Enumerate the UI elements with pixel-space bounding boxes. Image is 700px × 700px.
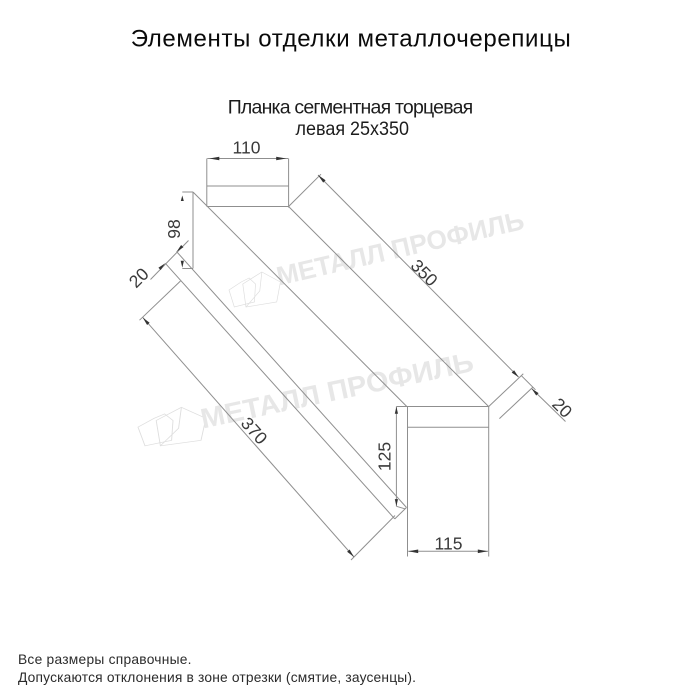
svg-text:Все размеры справочные.: Все размеры справочные.	[18, 652, 192, 667]
svg-text:20: 20	[125, 264, 153, 292]
svg-text:левая 25х350: левая 25х350	[296, 118, 410, 140]
svg-text:Элементы отделки металлочерепи: Элементы отделки металлочерепицы	[131, 25, 571, 52]
svg-text:Допускаются отклонения в зоне: Допускаются отклонения в зоне отрезки (с…	[18, 670, 416, 685]
svg-text:110: 110	[233, 138, 261, 158]
svg-text:МЕТАЛЛ ПРОФИЛЬ: МЕТАЛЛ ПРОФИЛЬ	[274, 205, 527, 291]
svg-text:МЕТАЛЛ ПРОФИЛЬ: МЕТАЛЛ ПРОФИЛЬ	[198, 346, 476, 434]
svg-text:125: 125	[375, 442, 395, 471]
svg-text:98: 98	[164, 219, 184, 238]
svg-text:20: 20	[548, 394, 576, 422]
svg-text:Планка сегментная торцевая: Планка сегментная торцевая	[228, 97, 474, 119]
svg-text:115: 115	[435, 534, 463, 554]
